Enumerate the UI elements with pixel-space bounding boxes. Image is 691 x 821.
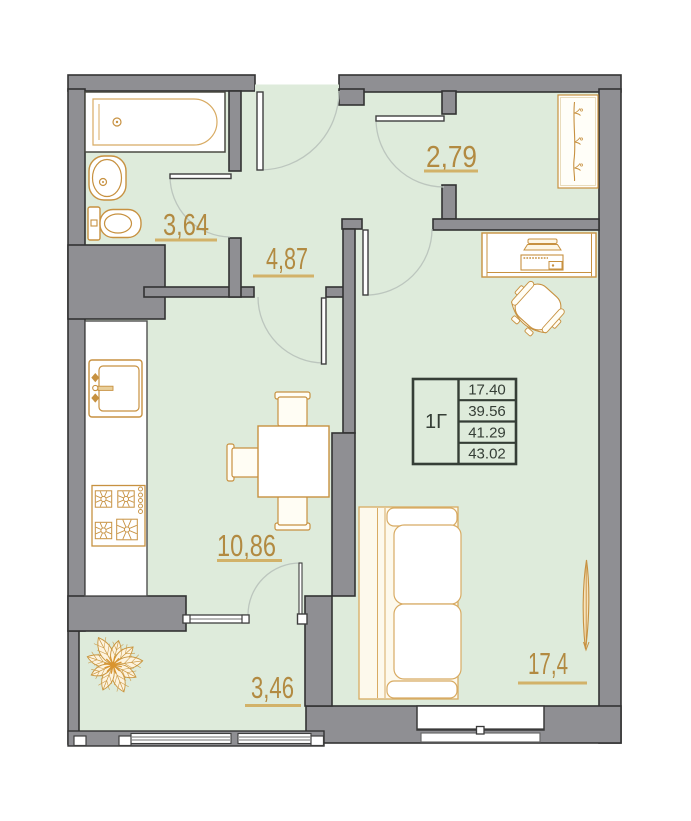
svg-text:41.29: 41.29 xyxy=(468,424,506,441)
svg-text:3,64: 3,64 xyxy=(163,207,209,242)
svg-text:2,79: 2,79 xyxy=(426,139,477,174)
svg-text:10,86: 10,86 xyxy=(217,528,276,563)
svg-text:39.56: 39.56 xyxy=(468,403,506,420)
svg-text:43.02: 43.02 xyxy=(468,446,506,463)
svg-text:17,4: 17,4 xyxy=(528,646,568,681)
svg-text:17.40: 17.40 xyxy=(468,382,506,399)
svg-text:3,46: 3,46 xyxy=(251,670,294,705)
svg-text:4,87: 4,87 xyxy=(266,241,308,276)
svg-text:1Г: 1Г xyxy=(425,411,447,433)
